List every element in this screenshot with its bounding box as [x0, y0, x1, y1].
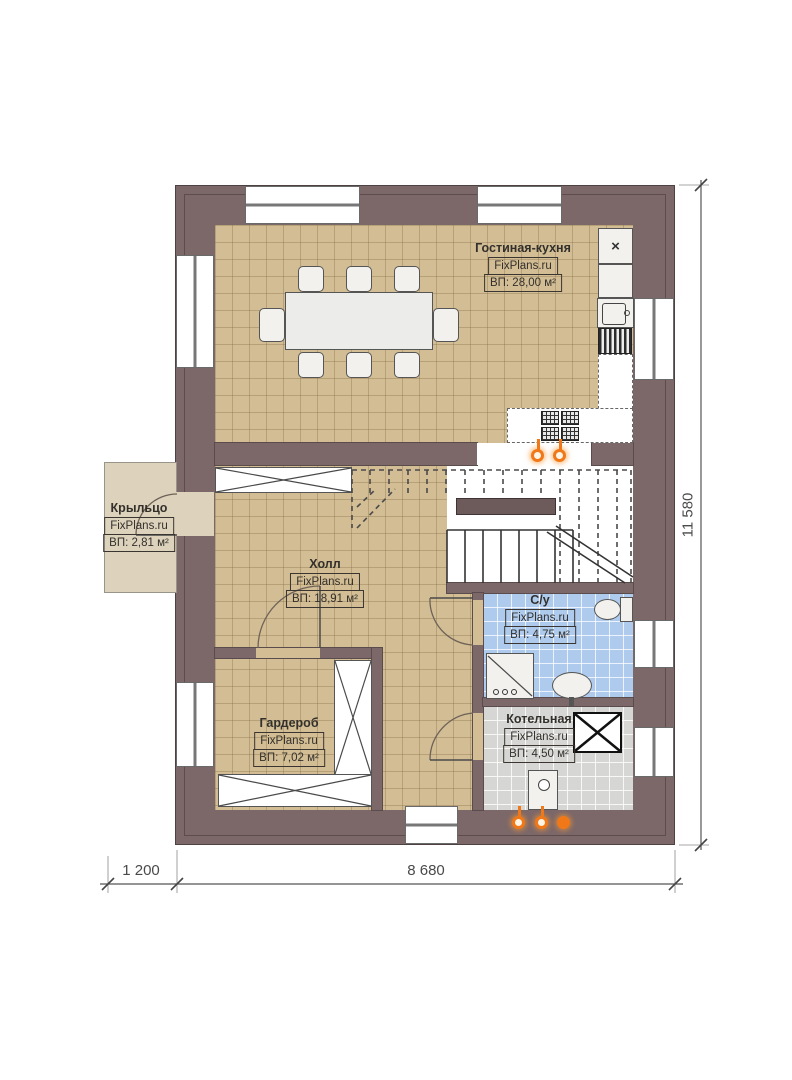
window-top-left [245, 186, 360, 224]
kitchen-cabinet [598, 264, 633, 298]
wall-wardrobe-right [372, 648, 382, 810]
fridge: × [598, 228, 633, 264]
wardrobe-door-opening [256, 648, 320, 658]
chair [298, 352, 324, 378]
watermark: FixPlans.ru [104, 517, 174, 535]
shower-knob [493, 689, 499, 695]
window-left-wardrobe [176, 682, 214, 767]
chair [259, 308, 285, 342]
floor-plan: × [0, 0, 792, 1080]
chair [298, 266, 324, 292]
bathroom-door-opening [473, 600, 483, 645]
room-area: ВП: 7,02 м² [253, 749, 325, 767]
window-right-kitchen [634, 298, 674, 380]
room-label-boiler: Котельная FixPlans.ru ВП: 4,50 м² [503, 712, 575, 763]
room-name: Гостиная-кухня [475, 241, 571, 255]
wall-stairs-bathroom [447, 583, 633, 593]
heating-pipe-icon [512, 816, 525, 829]
shower-knob [502, 689, 508, 695]
dim-label-main-width: 8 680 [407, 862, 445, 879]
stair-divider-wall [456, 498, 556, 515]
heating-pipe-icon [535, 816, 548, 829]
wall-kitchen-stub [592, 443, 633, 465]
stove-burner [541, 427, 559, 441]
window-right-boiler [634, 727, 674, 777]
room-area: ВП: 18,91 м² [286, 590, 364, 608]
stove-burner [561, 427, 579, 441]
watermark: FixPlans.ru [254, 732, 324, 750]
watermark: FixPlans.ru [505, 609, 575, 627]
room-label-bathroom: С/у FixPlans.ru ВП: 4,75 м² [504, 593, 576, 644]
watermark: FixPlans.ru [290, 573, 360, 591]
entrance-door [176, 492, 214, 536]
window-left-living [176, 255, 214, 368]
unit-knob [538, 779, 550, 791]
window-top-right [477, 186, 562, 224]
hall-closet [215, 467, 352, 493]
room-label-living-kitchen: Гостиная-кухня FixPlans.ru ВП: 28,00 м² [475, 241, 571, 292]
room-name: Котельная [506, 712, 571, 726]
dim-label-porch-width: 1 200 [122, 862, 160, 879]
watermark: FixPlans.ru [488, 257, 558, 275]
room-area: ВП: 4,75 м² [504, 626, 576, 644]
staircase-area [447, 465, 633, 583]
room-name: Холл [309, 557, 340, 571]
shower [486, 653, 534, 699]
window-bottom-hall [405, 806, 458, 844]
window-right-bathroom [634, 620, 674, 668]
room-area: ВП: 4,50 м² [503, 745, 575, 763]
dishwasher [598, 328, 632, 354]
fridge-icon: × [599, 229, 632, 263]
chair [394, 352, 420, 378]
wall-living-hall [215, 443, 477, 465]
boiler-room-unit [528, 770, 558, 810]
room-label-porch: Крыльцо FixPlans.ru ВП: 2,81 м² [103, 501, 175, 552]
gas-riser-icon [553, 449, 566, 462]
heating-pipe-icon [557, 816, 570, 829]
room-name: Крыльцо [111, 501, 168, 515]
gas-riser-icon [531, 449, 544, 462]
wardrobe-closet-bottom [218, 774, 372, 807]
room-label-wardrobe: Гардероб FixPlans.ru ВП: 7,02 м² [253, 716, 325, 767]
sink-basin [602, 303, 626, 325]
room-name: С/у [530, 593, 549, 607]
kitchen-sink [597, 298, 634, 328]
dim-label-total-height: 11 580 [680, 493, 697, 538]
washbasin [552, 672, 592, 699]
chair [433, 308, 459, 342]
shower-knob [511, 689, 517, 695]
room-name: Гардероб [259, 716, 318, 730]
stove-burner [541, 411, 559, 425]
stove-burner [561, 411, 579, 425]
watermark: FixPlans.ru [504, 728, 574, 746]
washbasin-tap [569, 697, 574, 706]
wardrobe-closet-right [334, 660, 372, 775]
faucet-icon [624, 310, 630, 316]
toilet [594, 599, 621, 620]
chair [394, 266, 420, 292]
chair [346, 352, 372, 378]
chair [346, 266, 372, 292]
toilet-tank [620, 597, 633, 622]
kitchen-counter-side [598, 354, 633, 409]
room-label-hall: Холл FixPlans.ru ВП: 18,91 м² [286, 557, 364, 608]
room-area: ВП: 28,00 м² [484, 274, 562, 292]
wall-bathroom-boiler [483, 698, 633, 706]
boiler-door-opening [473, 713, 483, 760]
boiler [573, 712, 622, 753]
dining-table [285, 292, 433, 350]
room-area: ВП: 2,81 м² [103, 534, 175, 552]
